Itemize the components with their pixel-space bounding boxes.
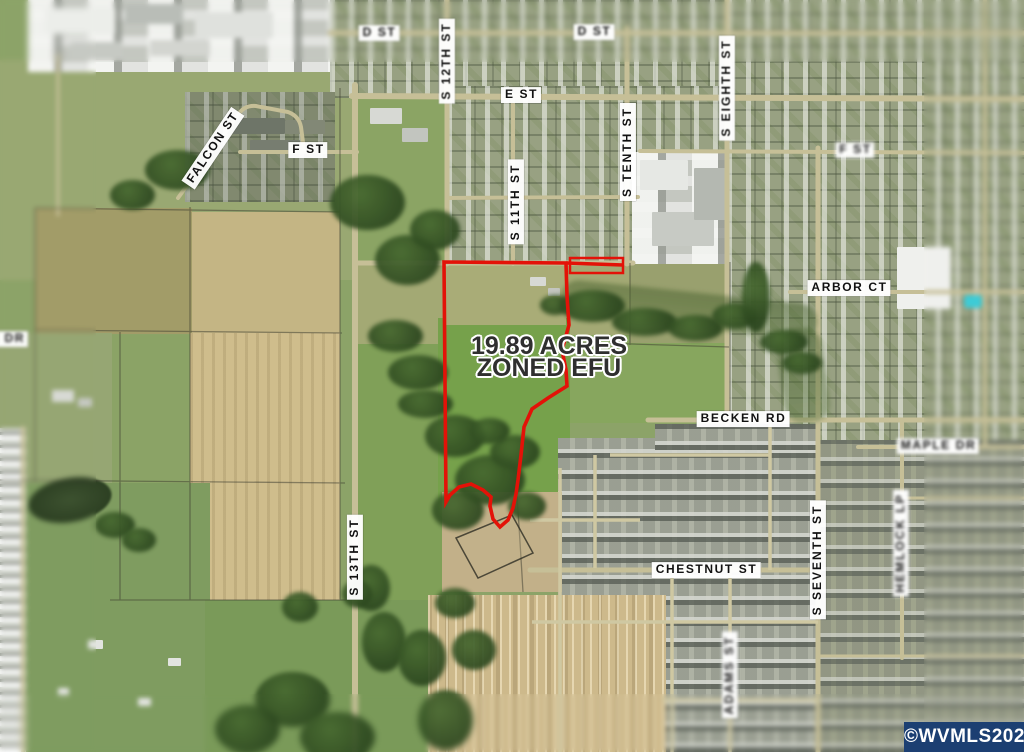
street-label-e-st: E ST xyxy=(501,87,541,103)
property-boundary-line xyxy=(444,262,569,527)
street-label-s-tenth-st: S TENTH ST xyxy=(620,103,636,201)
street-label-d-st-east: D ST xyxy=(574,24,615,40)
street-label-arbor-ct: ARBOR CT xyxy=(807,280,890,296)
street-label-f-st-east: F ST xyxy=(835,142,874,158)
boundary-access-line xyxy=(566,263,623,265)
street-label-e-dr-partial: E DR xyxy=(0,331,28,347)
mls-watermark: ©WVMLS2026 xyxy=(904,722,1024,752)
street-label-chestnut-st: CHESTNUT ST xyxy=(652,562,761,578)
street-label-s-13th-st: S 13TH ST xyxy=(347,514,363,599)
street-label-s-12th-st: S 12TH ST xyxy=(439,18,455,103)
street-label-s-11th-st: S 11TH ST xyxy=(508,160,524,245)
property-boundary xyxy=(444,258,623,527)
street-label-maple-dr: MAPLE DR xyxy=(897,438,979,454)
graded-parcel-outline xyxy=(456,515,533,578)
acreage-line2: ZONED EFU xyxy=(471,357,627,379)
street-label-s-eighth-st: S EIGHTH ST xyxy=(719,35,735,140)
aerial-map: D ST D ST S 12TH ST E ST S 11TH ST S TEN… xyxy=(0,0,1024,752)
acreage-annotation: 19.89 ACRES ZONED EFU xyxy=(471,335,627,379)
street-label-d-st-west: D ST xyxy=(359,25,400,41)
street-label-f-st-west: F ST xyxy=(288,142,327,158)
street-label-adams-st: ADAMS ST xyxy=(722,632,738,719)
street-label-becken-rd: BECKEN RD xyxy=(697,411,790,427)
street-label-hemlock-lp: HEMLOCK LP xyxy=(893,489,909,596)
street-label-s-seventh-st: S SEVENTH ST xyxy=(810,501,826,620)
